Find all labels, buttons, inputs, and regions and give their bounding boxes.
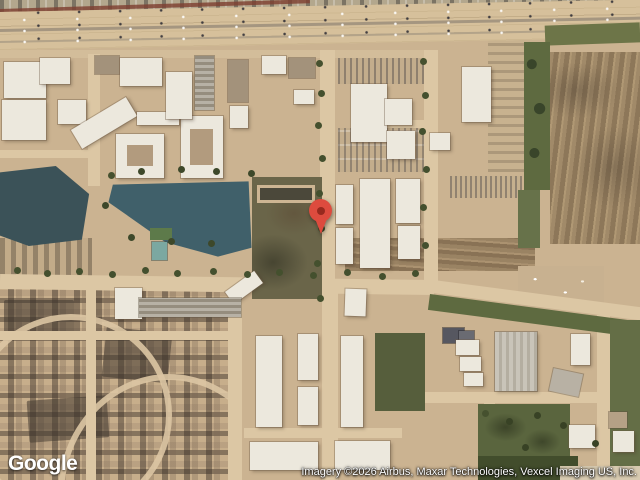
- warehouse-gray: [495, 332, 537, 391]
- building: [571, 334, 590, 365]
- warehouse: [298, 334, 318, 380]
- warehouse: [398, 226, 420, 259]
- imagery-attribution: Imagery ©2026 Airbus, Maxar Technologies…: [301, 466, 637, 478]
- pond-small-west: [0, 166, 90, 246]
- building: [613, 431, 634, 452]
- road-vertical-east: [424, 50, 438, 286]
- tree-row-east-road: [420, 58, 427, 65]
- parking-lot: [338, 54, 430, 84]
- road-vertical-center: [320, 50, 335, 286]
- tree-row-center-road: [316, 60, 323, 67]
- road-residential-vertical: [86, 288, 96, 480]
- building: [230, 106, 248, 128]
- plowed-field-east: [550, 52, 640, 244]
- building: [95, 56, 119, 74]
- building: [120, 58, 162, 86]
- grass-strip-northeast: [545, 22, 640, 45]
- building: [609, 412, 627, 428]
- building: [351, 84, 387, 142]
- building: [40, 58, 70, 84]
- building: [430, 133, 450, 150]
- warehouse: [341, 336, 363, 427]
- road-warehouse-horizontal: [244, 428, 402, 438]
- tree-cluster-pond: [108, 172, 115, 179]
- green-field-southeast: [478, 404, 570, 462]
- satellite-map[interactable]: Google Imagery ©2026 Airbus, Maxar Techn…: [0, 0, 640, 480]
- map-pin-inner-dot: [317, 207, 325, 215]
- building: [345, 289, 367, 317]
- building: [166, 72, 192, 119]
- sports-court: [150, 228, 172, 240]
- building: [385, 99, 412, 125]
- road-horizontal-west: [0, 150, 90, 158]
- courtyard: [190, 129, 213, 165]
- building: [569, 425, 595, 448]
- building: [462, 67, 491, 122]
- building: [115, 288, 142, 319]
- building: [456, 340, 479, 355]
- building-gray-long: [139, 298, 241, 317]
- building: [2, 100, 46, 140]
- warehouse: [360, 179, 390, 268]
- tree-line-vertical: [518, 190, 540, 248]
- tree-row-main-road: [14, 267, 21, 274]
- tree-cluster-southeast: [482, 410, 489, 417]
- building: [262, 56, 286, 74]
- road-vertical-fareast: [597, 315, 610, 480]
- green-strip-fareast: [610, 320, 640, 480]
- building: [464, 373, 483, 386]
- warehouse: [336, 228, 353, 264]
- building: [294, 90, 314, 104]
- road-residential-horizontal: [0, 331, 230, 340]
- frontage-road: [0, 50, 434, 58]
- map-pin-icon[interactable]: [309, 199, 332, 236]
- warehouse: [336, 185, 353, 224]
- building: [289, 58, 315, 78]
- teal-roof-building: [152, 242, 167, 260]
- track-structure: [257, 185, 315, 203]
- green-field-center: [375, 333, 425, 411]
- building: [460, 357, 481, 371]
- google-logo[interactable]: Google: [8, 452, 77, 476]
- tree-line-vertical: [524, 42, 550, 190]
- parking-garage: [195, 56, 214, 110]
- warehouse: [256, 336, 282, 427]
- parking-lot: [450, 176, 522, 198]
- building: [387, 131, 415, 159]
- building: [58, 100, 86, 124]
- warehouse: [396, 179, 420, 223]
- warehouse: [298, 387, 318, 425]
- building: [228, 60, 248, 102]
- courtyard: [127, 145, 153, 166]
- pond-large: [107, 179, 253, 259]
